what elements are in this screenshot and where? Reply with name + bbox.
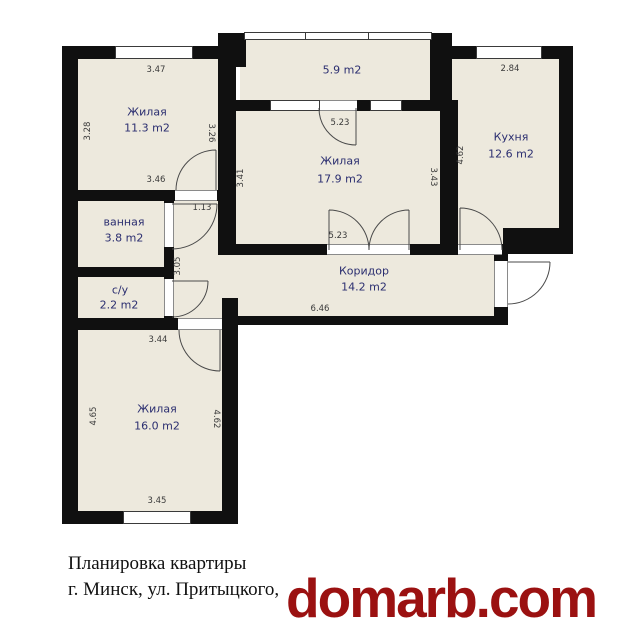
room-area-wc: 2.2 m2 — [100, 299, 139, 312]
dimension-label: 5.23 — [331, 118, 350, 128]
wall-segment — [503, 228, 573, 254]
door-opening-entrance — [494, 261, 508, 307]
door-opening-bathroom — [164, 203, 174, 247]
site-logo: domarb.com — [286, 566, 596, 630]
room-name-living-2: Жилая — [320, 155, 359, 168]
room-name-bathroom: ванная — [104, 216, 145, 229]
room-name-living-1: Жилая — [127, 106, 166, 119]
dimension-label: 3.45 — [148, 496, 167, 506]
wall-segment — [222, 298, 238, 332]
wall-segment — [222, 330, 238, 524]
railing-tick — [368, 32, 369, 40]
window — [270, 100, 320, 111]
wall-segment — [559, 46, 573, 230]
dimension-label: 6.46 — [311, 304, 330, 314]
dimension-label: 3.26 — [206, 124, 216, 143]
dimension-label: 3.43 — [428, 168, 438, 187]
wall-segment — [62, 267, 174, 277]
dimension-label: 3.41 — [236, 169, 246, 188]
dimension-label: 4.62 — [456, 146, 466, 165]
dimension-label: 4.65 — [89, 407, 99, 426]
floor-corridor-horizontal — [166, 252, 502, 318]
wall-segment — [222, 316, 505, 325]
door-arc-entrance — [508, 262, 550, 304]
room-name-wc: с/у — [112, 284, 128, 297]
caption-line-1: Планировка квартиры — [68, 551, 279, 577]
dimension-label: 3.47 — [147, 65, 166, 75]
room-area-balcony: 5.9 m2 — [323, 64, 362, 77]
door-opening-living-1 — [175, 190, 217, 201]
dimension-label: 3.46 — [147, 175, 166, 185]
door-opening-living-3 — [178, 318, 222, 330]
caption-line-2: г. Минск, ул. Притыцкого, — [68, 577, 279, 603]
dimension-label: 3.44 — [149, 335, 168, 345]
window — [370, 100, 402, 111]
room-area-corridor: 14.2 m2 — [341, 281, 387, 294]
balcony-railing — [244, 32, 432, 40]
dimension-label: 3.28 — [83, 122, 93, 141]
dimension-label: 2.84 — [501, 64, 520, 74]
room-name-kitchen: Кухня — [494, 131, 529, 144]
room-name-living-3: Жилая — [137, 403, 176, 416]
door-opening-living-2 — [327, 244, 410, 255]
wall-segment — [440, 100, 458, 255]
door-opening-wc — [164, 279, 174, 316]
railing-tick — [305, 32, 306, 40]
wall-segment — [430, 33, 452, 105]
window — [123, 511, 191, 524]
window — [476, 46, 542, 59]
room-area-living-3: 16.0 m2 — [134, 420, 180, 433]
dimension-label: 3.05 — [173, 257, 183, 276]
floorplan-image: Жилая 11.3 m2 5.9 m2 Жилая 17.9 m2 Кухня… — [0, 0, 630, 640]
room-area-living-2: 17.9 m2 — [317, 173, 363, 186]
floor-plan: Жилая 11.3 m2 5.9 m2 Жилая 17.9 m2 Кухня… — [0, 0, 630, 556]
room-area-kitchen: 12.6 m2 — [488, 148, 534, 161]
dimension-label: 4.62 — [211, 410, 221, 429]
dimension-label: 1.13 — [193, 203, 212, 213]
door-opening-kitchen — [458, 244, 502, 255]
caption: Планировка квартиры г. Минск, ул. Притыц… — [68, 551, 279, 602]
window — [115, 46, 193, 59]
dimension-label: 5.23 — [329, 231, 348, 241]
wall-segment — [62, 46, 78, 524]
wall-segment — [218, 33, 246, 67]
room-name-corridor: Коридор — [339, 265, 389, 278]
door-opening-balcony — [320, 100, 357, 111]
room-area-bathroom: 3.8 m2 — [105, 232, 144, 245]
room-area-living-1: 11.3 m2 — [124, 122, 170, 135]
wall-segment — [62, 318, 180, 330]
